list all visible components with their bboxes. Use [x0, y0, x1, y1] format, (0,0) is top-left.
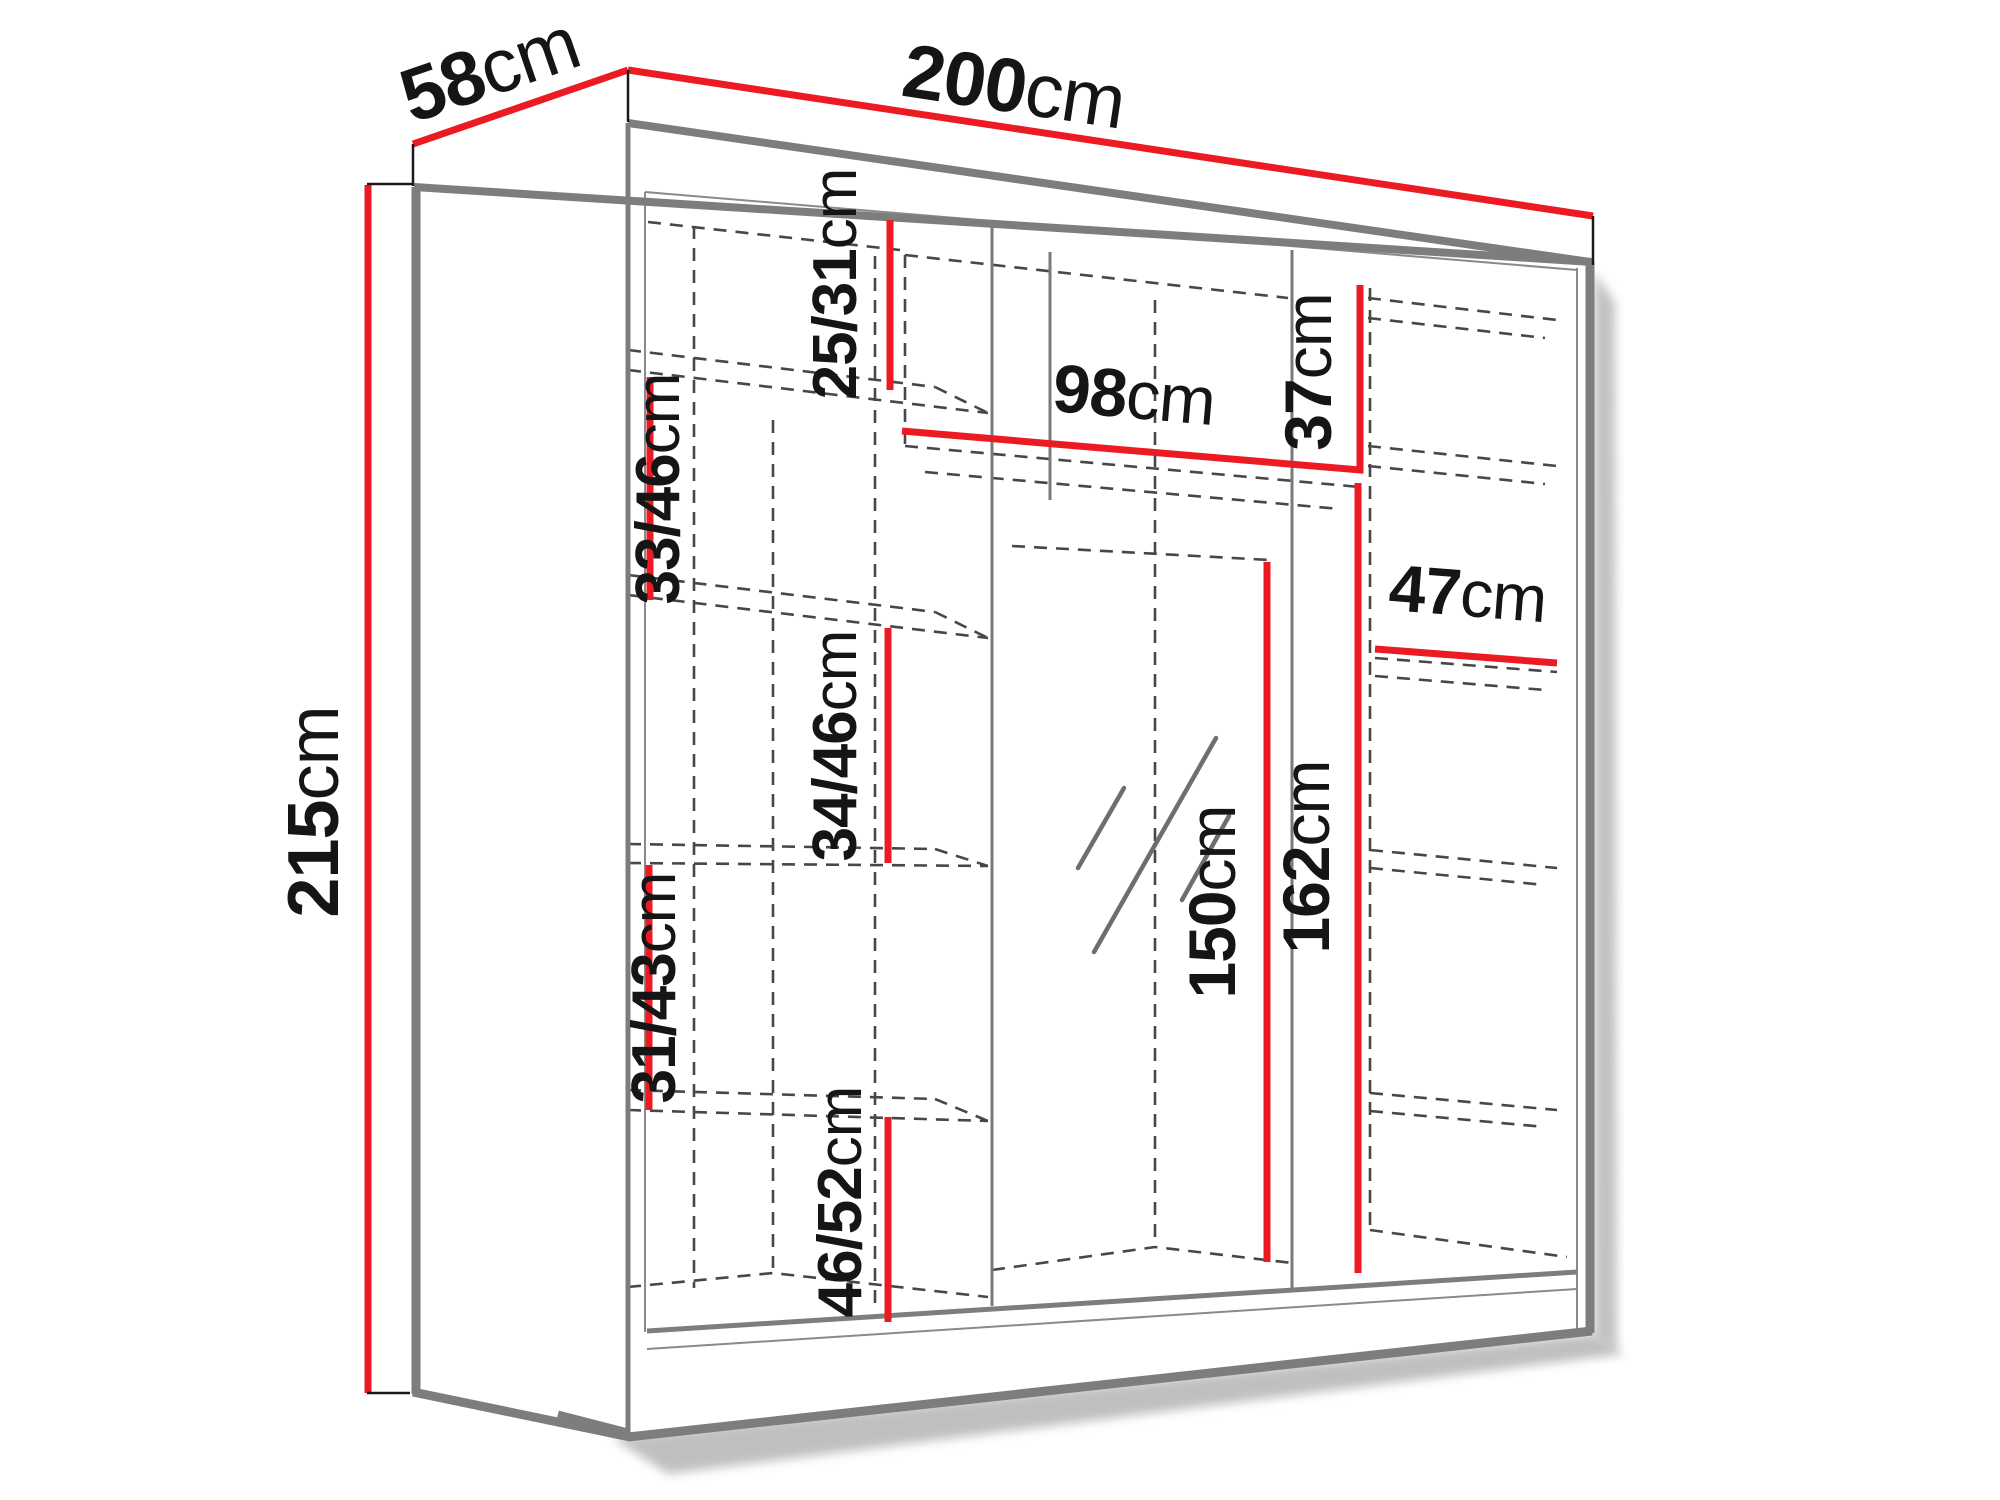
dim-label-hanging-mid: 150cm	[1175, 805, 1249, 998]
dim-label-right-shelf-width: 47cm	[1386, 550, 1549, 636]
dim-label-top-shelf-mid: 25/31cm	[801, 169, 870, 400]
diagram-canvas: 200cm 58cm 215cm 25/31cm 98cm 37cm 33/46…	[0, 0, 2000, 1500]
shadow-right	[1594, 272, 1617, 1352]
dim-label-height: 215cm	[274, 706, 354, 917]
cabinet-body	[416, 123, 1590, 1437]
dim-label-left-gap-4: 46/52cm	[806, 1087, 875, 1318]
dim-label-left-gap-1: 33/46cm	[624, 374, 693, 605]
dim-label-top-shelf-right: 37cm	[1271, 293, 1345, 450]
dim-label-hanging-right: 162cm	[1269, 760, 1343, 953]
dim-label-left-gap-3: 31/43cm	[620, 873, 689, 1104]
dim-label-left-gap-2: 34/46cm	[801, 631, 870, 862]
dim-label-width: 200cm	[897, 28, 1130, 145]
wardrobe-dimension-diagram: 200cm 58cm 215cm 25/31cm 98cm 37cm 33/46…	[0, 0, 2000, 1500]
cabinet-face	[416, 123, 1590, 1437]
dim-label-mid-shelf-width: 98cm	[1050, 350, 1218, 440]
